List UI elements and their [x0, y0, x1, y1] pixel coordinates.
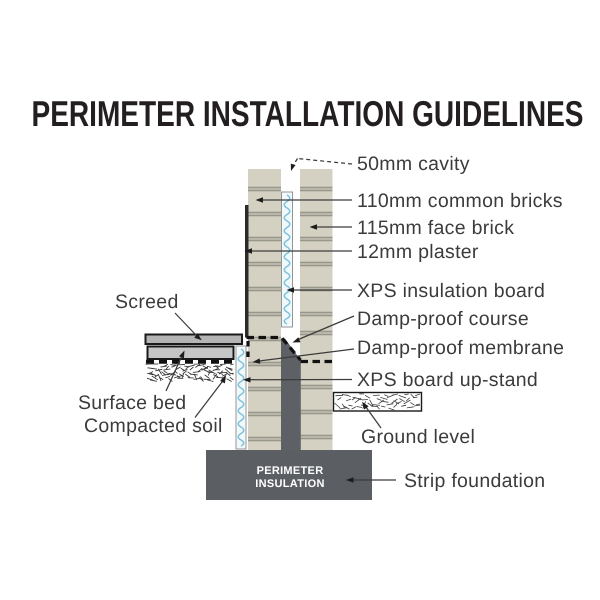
- svg-text:INSULATION: INSULATION: [255, 478, 324, 490]
- svg-text:Strip foundation: Strip foundation: [404, 470, 545, 492]
- svg-text:XPS board up-stand: XPS board up-stand: [357, 369, 538, 391]
- svg-text:Ground level: Ground level: [361, 426, 475, 448]
- svg-text:Compacted soil: Compacted soil: [84, 415, 223, 437]
- svg-text:XPS insulation board: XPS insulation board: [357, 280, 545, 302]
- svg-text:Damp-proof membrane: Damp-proof membrane: [357, 337, 564, 359]
- svg-text:50mm cavity: 50mm cavity: [357, 153, 470, 175]
- svg-text:115mm face brick: 115mm face brick: [357, 217, 514, 239]
- svg-text:Damp-proof course: Damp-proof course: [357, 308, 529, 330]
- svg-text:12mm plaster: 12mm plaster: [357, 241, 479, 263]
- svg-text:Screed: Screed: [115, 291, 179, 313]
- svg-text:110mm common bricks: 110mm common bricks: [357, 190, 563, 212]
- svg-text:PERIMETER: PERIMETER: [257, 465, 324, 477]
- svg-text:PERIMETER INSTALLATION GUIDELI: PERIMETER INSTALLATION GUIDELINES: [32, 93, 584, 134]
- svg-text:Surface bed: Surface bed: [78, 392, 186, 414]
